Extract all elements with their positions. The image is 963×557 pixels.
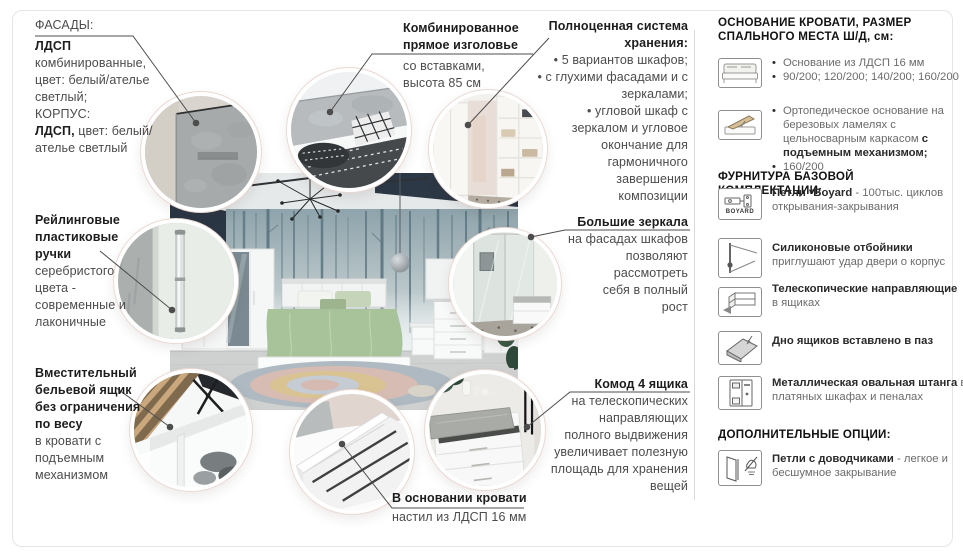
storage-line: • с глухими фасадами и с xyxy=(528,69,688,86)
drawer-bottom-icon xyxy=(718,331,762,365)
storage-line: гармоничного xyxy=(528,154,688,171)
mirrors-line: себя в полный xyxy=(553,282,688,299)
base-item-1: Основание из ЛДСП 16 мм 90/200; 120/200;… xyxy=(772,56,963,84)
telescopic-rails-icon xyxy=(718,287,762,317)
handles-heading: Рейлинговые xyxy=(35,212,155,229)
base-item-2: Ортопедическое основание на березовых ла… xyxy=(772,104,963,174)
storage-heading: Полноценная система xyxy=(528,18,688,35)
hinges-item: Петли *Boyard - 100тыс. циклов открывани… xyxy=(772,186,963,214)
hinges-line2: открывания-закрывания xyxy=(772,200,963,214)
groove-bold: Дно ящиков вставлено в паз xyxy=(772,335,933,347)
facades-title: ФАСАДЫ: xyxy=(35,17,177,34)
bed-base-line: настил из ЛДСП 16 мм xyxy=(392,509,532,526)
chest-line: на телескопических xyxy=(528,393,688,410)
handles-heading: ручки xyxy=(35,246,155,263)
linen-line: подъемным xyxy=(35,450,165,467)
options-section-heading: ДОПОЛНИТЕЛЬНЫЕ ОПЦИИ: xyxy=(718,428,958,442)
base-item-1-bullet: 90/200; 120/200; 140/200; 160/200 xyxy=(772,70,963,84)
rod-line2: платяных шкафах и пеналах xyxy=(772,390,963,404)
lift-bed-icon xyxy=(718,110,762,140)
storage-line: • угловой шкаф с xyxy=(528,103,688,120)
linen-heading: по весу xyxy=(35,416,165,433)
linen-drawer-callout: Вместительный бельевой ящик без ограниче… xyxy=(35,365,165,484)
sidebar-divider xyxy=(694,30,695,500)
facades-line: ЛДСП xyxy=(35,38,177,55)
chest-line: направляющих xyxy=(528,410,688,427)
base-section-heading: ОСНОВАНИЕ КРОВАТИ, РАЗМЕР СПАЛЬНОГО МЕСТ… xyxy=(718,16,948,44)
mirrors-line: рассмотреть xyxy=(553,265,688,282)
telescopic-line2: в ящиках xyxy=(772,296,963,310)
headboard-photo-circle xyxy=(287,68,411,192)
oval-rod-icon xyxy=(718,376,762,410)
handles-line: цвета - xyxy=(35,280,155,297)
handles-callout: Рейлинговые пластиковые ручки серебристо… xyxy=(35,212,155,331)
facades-line: цвет: белый/ателье xyxy=(35,72,177,89)
storage-line: зеркалом и угловое xyxy=(528,120,688,137)
chest-line: вещей xyxy=(528,478,688,495)
linen-line: механизмом xyxy=(35,467,165,484)
mirror-photo-circle xyxy=(449,228,561,340)
closers-rest: - легкое и xyxy=(894,453,948,465)
base-item-1-bullet: Основание из ЛДСП 16 мм xyxy=(772,56,963,70)
linen-heading: Вместительный xyxy=(35,365,165,382)
storage-line: окончание для xyxy=(528,137,688,154)
chest-line: полного выдвижения xyxy=(528,427,688,444)
bumpers-bold: Силиконовые отбойники xyxy=(772,242,913,254)
facades-line-bold: ЛДСП, xyxy=(35,124,75,138)
facades-line: КОРПУС: xyxy=(35,106,177,123)
mirrors-line: позволяют xyxy=(553,248,688,265)
rod-rest: в xyxy=(957,377,963,389)
base-item-2-text: Ортопедическое основание на березовых ла… xyxy=(783,105,944,145)
boyard-hinge-icon: BOYARD xyxy=(718,188,762,220)
base-item-2-bullet: Ортопедическое основание на березовых ла… xyxy=(772,104,963,160)
handles-line: лаконичные xyxy=(35,314,155,331)
storage-line: • 5 вариантов шкафов; xyxy=(528,52,688,69)
bumpers-line2: приглушают удар двери о корпус xyxy=(772,255,963,269)
linen-heading: бельевой ящик xyxy=(35,382,165,399)
handles-heading: пластиковые xyxy=(35,229,155,246)
linen-line: в кровати с xyxy=(35,433,165,450)
chest-heading: Комод 4 ящика xyxy=(528,376,688,393)
storage-line: зеркалами; xyxy=(528,86,688,103)
handles-line: серебристого xyxy=(35,263,155,280)
facades-line: ЛДСП, цвет: белый/ xyxy=(35,123,177,140)
facades-callout: ФАСАДЫ: ЛДСП комбинированные, цвет: белы… xyxy=(35,17,177,157)
telescopic-item: Телескопические направляющие в ящиках xyxy=(772,282,963,310)
facades-line: ателье светлый xyxy=(35,140,177,157)
storage-line: завершения xyxy=(528,171,688,188)
hinges-bold: Петли *Boyard xyxy=(772,187,852,199)
rod-bold: Металлическая овальная штанга xyxy=(772,377,957,389)
facades-line: светлый; xyxy=(35,89,177,106)
closers-line2: бесшумное закрывание xyxy=(772,466,963,480)
linen-heading: без ограничения xyxy=(35,399,165,416)
bed-icon xyxy=(718,58,762,88)
hinges-rest: - 100тыс. циклов xyxy=(852,187,943,199)
chest-line: увеличивает полезную xyxy=(528,444,688,461)
chest-photo-circle xyxy=(425,370,545,490)
silicone-bumper-icon xyxy=(718,238,762,278)
mirrors-callout: Большие зеркала на фасадах шкафов позвол… xyxy=(553,214,688,316)
rod-item: Металлическая овальная штанга в платяных… xyxy=(772,376,963,404)
closers-bold: Петли с доводчиками xyxy=(772,453,894,465)
bed-base-callout: В основании кровати настил из ЛДСП 16 мм xyxy=(392,490,532,526)
groove-item: Дно ящиков вставлено в паз xyxy=(772,334,963,348)
mirrors-line: на фасадах шкафов xyxy=(553,231,688,248)
closers-item: Петли с доводчиками - легкое и бесшумное… xyxy=(772,452,963,480)
mirrors-heading: Большие зеркала xyxy=(553,214,688,231)
storage-callout: Полноценная система хранения: • 5 вариан… xyxy=(528,18,688,205)
facades-line-rest: цвет: белый/ xyxy=(75,124,153,138)
storage-heading: хранения: xyxy=(528,35,688,52)
bed-base-heading: В основании кровати xyxy=(392,490,532,507)
infographic-canvas: { "colors": {"text":"#4c4c4c","heading":… xyxy=(0,0,963,557)
chest-line: площадь для хранения xyxy=(528,461,688,478)
handles-line: современные и xyxy=(35,297,155,314)
storage-line: композиции xyxy=(528,188,688,205)
bumpers-item: Силиконовые отбойники приглушают удар дв… xyxy=(772,241,963,269)
boyard-label: BOYARD xyxy=(726,209,754,216)
telescopic-bold: Телескопические направляющие xyxy=(772,283,957,295)
facades-line: комбинированные, xyxy=(35,55,177,72)
mirrors-line: рост xyxy=(553,299,688,316)
door-closer-icon xyxy=(718,450,762,486)
chest-callout: Комод 4 ящика на телескопических направл… xyxy=(528,376,688,495)
